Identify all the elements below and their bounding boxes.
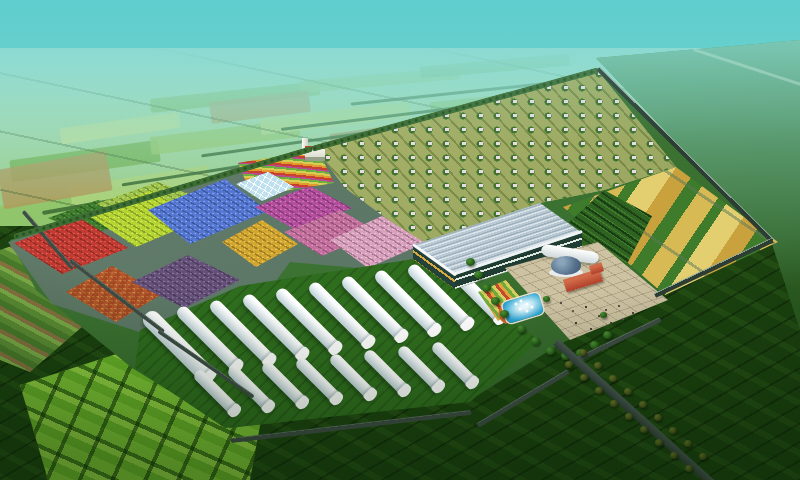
tree-icon (640, 426, 648, 433)
tree-icon (655, 439, 663, 446)
tree-icon (685, 465, 693, 472)
tree-icon (625, 413, 633, 420)
tree-icon (669, 427, 677, 434)
tree-icon (699, 453, 707, 460)
scene-canvas (0, 0, 800, 480)
tree-icon (670, 452, 678, 459)
tree-icon (684, 440, 692, 447)
tree-icon (654, 414, 662, 421)
tree-icon (610, 400, 618, 407)
tree-icon (609, 375, 617, 382)
tree-icon (580, 374, 588, 381)
tree-icon (595, 387, 603, 394)
tree-icon (594, 362, 602, 369)
entrance-road-trees (0, 0, 800, 480)
tree-icon (624, 388, 632, 395)
tree-icon (565, 361, 573, 368)
tree-icon (579, 349, 587, 356)
tree-icon (639, 401, 647, 408)
